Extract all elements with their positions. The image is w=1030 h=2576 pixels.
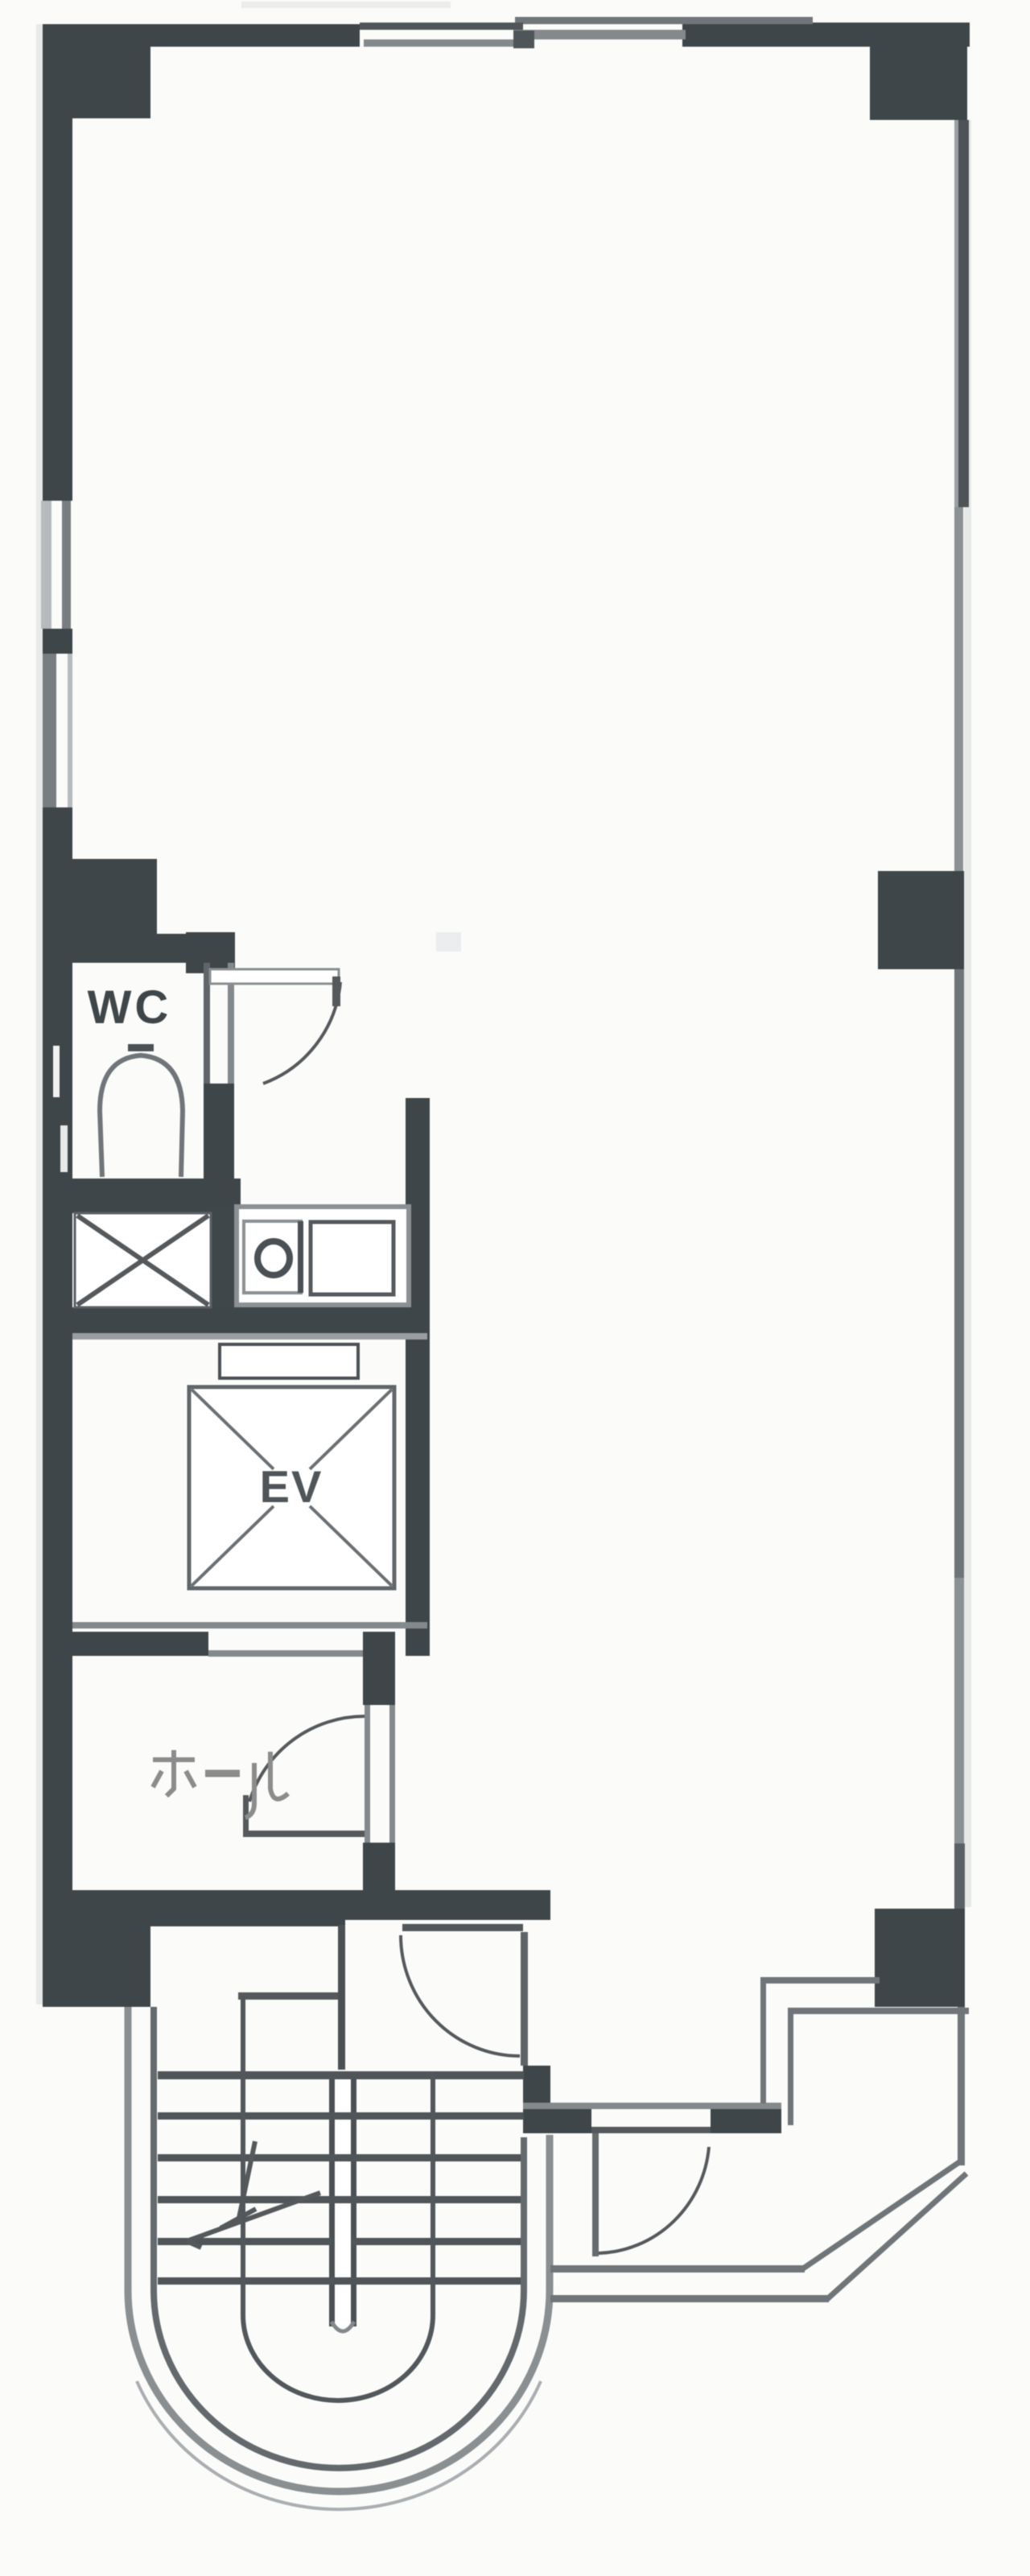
svg-text:WC: WC — [88, 981, 172, 1034]
svg-text:EV: EV — [260, 1461, 323, 1512]
